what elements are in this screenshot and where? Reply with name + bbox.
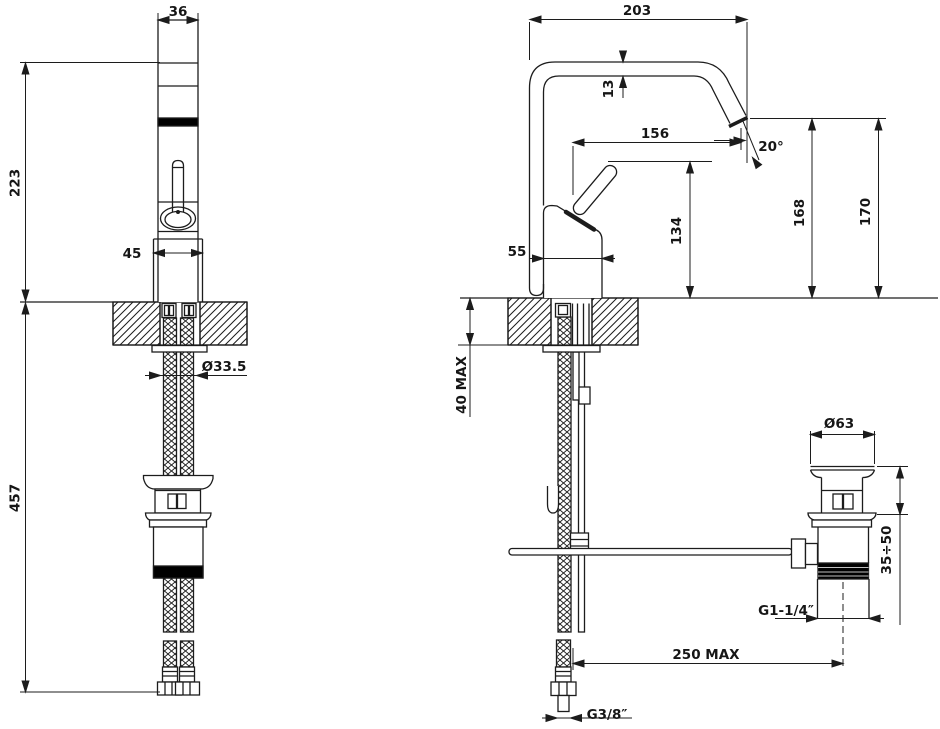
dim-front-body-height: 223 [8, 169, 24, 197]
faucet-technical-drawing: 36 223 45 457 Ø33.5 [0, 0, 940, 729]
dim-front-hose-drop: 457 [8, 484, 24, 512]
front-hose-fittings [158, 667, 200, 695]
side-spout-outer [530, 62, 747, 116]
dim-side-body-depth: 55 [508, 244, 527, 260]
technical-drawing-page: 36 223 45 457 Ø33.5 [0, 0, 940, 729]
side-horizontal-linkage-rod [509, 549, 792, 556]
dim-side-spout-height: 170 [858, 198, 874, 226]
front-faucet-body [154, 20, 203, 302]
side-hose-elbow [548, 486, 559, 513]
side-mounting-washer [543, 346, 600, 353]
side-rod-ball-joint [792, 539, 818, 568]
dim-side-aerator-angle: 20° [758, 139, 784, 155]
side-deck-section [460, 298, 938, 352]
side-faucet-profile [530, 62, 748, 298]
side-view: 203 13 156 20° 55 134 168 170 40 MAX Ø63… [454, 3, 938, 723]
front-view: 36 223 45 457 Ø33.5 [8, 4, 248, 695]
front-popup-waste [144, 476, 214, 579]
dim-side-spout-projection: 156 [641, 126, 669, 142]
side-dimensions [458, 16, 908, 721]
dim-side-waste-thread: G1-1/4″ [758, 603, 814, 619]
front-mounting-washer [152, 346, 207, 353]
side-body [544, 206, 603, 299]
dim-side-rod-reach: 250 MAX [672, 647, 740, 663]
dim-side-waste-diameter: Ø63 [824, 416, 854, 432]
side-tube-cap [530, 284, 544, 296]
front-trim-band [158, 118, 198, 126]
side-spout-inner [544, 76, 731, 124]
dim-side-spout-reach: 203 [623, 3, 651, 19]
dim-front-spout-width: 36 [169, 4, 188, 20]
side-lever-handle [571, 163, 620, 217]
dim-front-base-width: 45 [123, 246, 142, 262]
dim-side-handle-height: 134 [669, 217, 685, 245]
front-dimensions [20, 13, 247, 692]
dim-front-shank-diameter: Ø33.5 [202, 359, 247, 375]
dim-side-waste-adjustment: 35÷50 [879, 526, 895, 575]
dim-side-hose-thread: G3/8″ [587, 707, 628, 723]
dim-side-deck-thickness: 40 MAX [454, 356, 470, 414]
dim-side-spout-tube: 13 [601, 80, 617, 99]
side-popup-waste [792, 467, 877, 669]
side-hose-fitting [551, 667, 576, 712]
front-deck-section [20, 302, 247, 352]
dim-side-outlet-height: 168 [792, 199, 808, 227]
